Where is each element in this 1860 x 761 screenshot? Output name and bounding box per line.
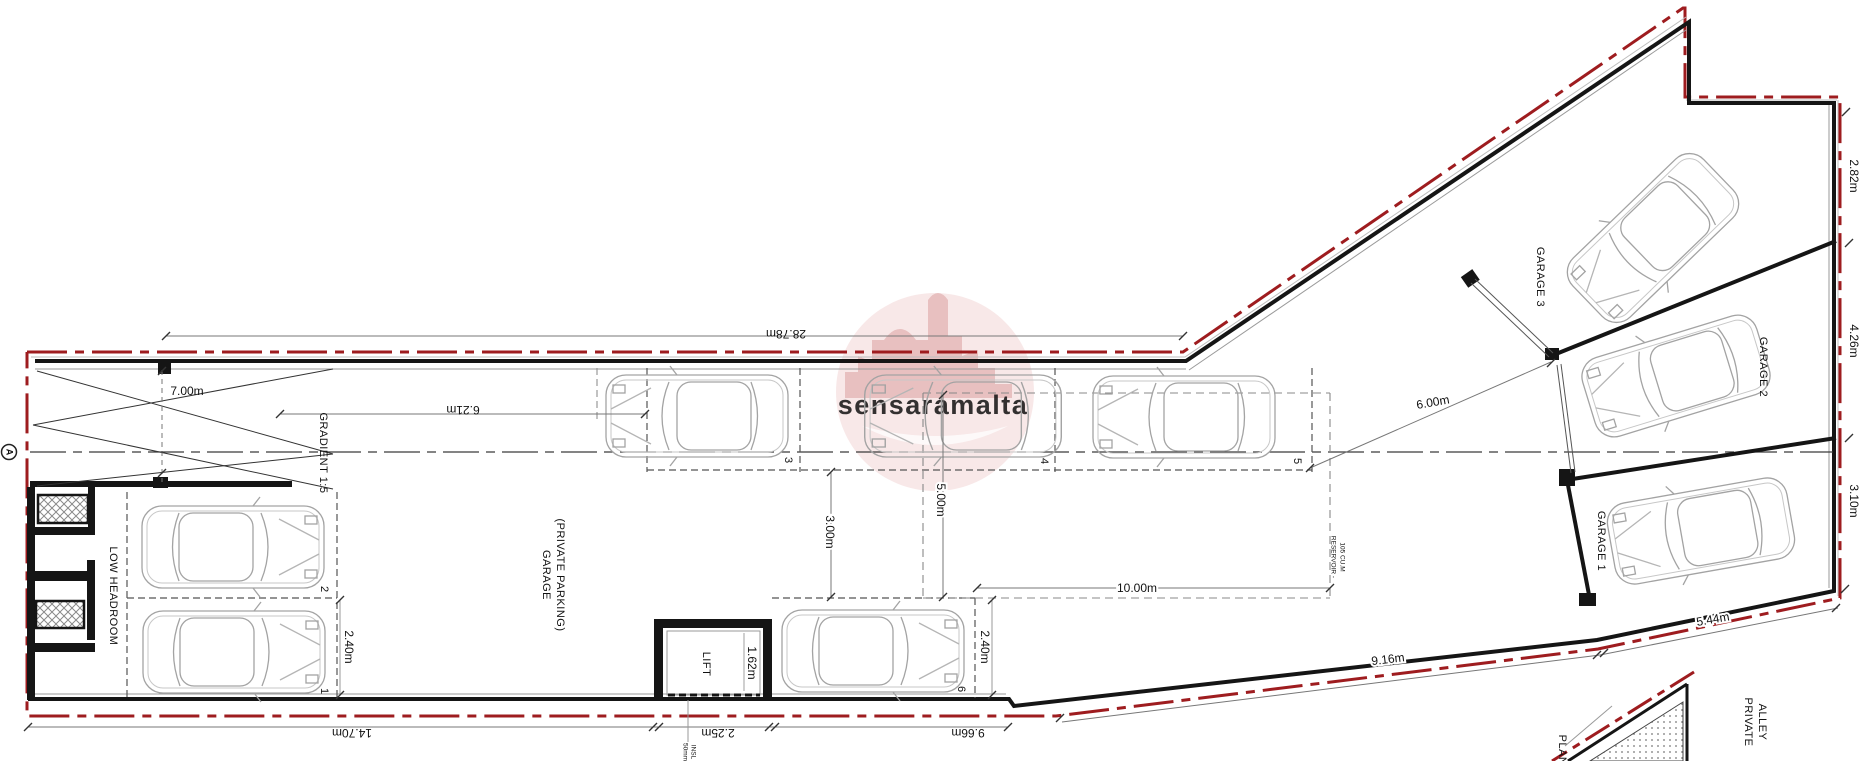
left-annex-walls [27,487,95,700]
dim-bay1-width: 2.40m [342,630,356,663]
hatched-pillar-icon [38,495,88,523]
reservoir-label-line2: 105 CU.M [1338,542,1345,571]
car-icon [143,602,325,702]
lift-label: LIFT [700,652,712,677]
garage-label-line2: (PRIVATE PARKING) [554,518,566,631]
dim-aisle-3m: 3.00m [823,515,837,548]
car-icon [1603,466,1800,596]
gradient-label: GRADIENT 1:5 [317,413,329,494]
watermark-text: sensaramalta [838,390,1029,420]
garage-label-line1: GARAGE [540,550,552,600]
private-alley-label-line1: PRIVATE [1742,698,1754,747]
insl-label-a: 50mm [681,743,688,761]
reservoir-label-line1: RESERVOIR - [1329,536,1336,578]
dim-bottom-lift: 2.25m [701,726,734,740]
garage-door-lines [1471,279,1575,473]
wall-end-blocks [1461,269,1596,606]
insl-label-b: INSL [689,745,696,760]
dim-right-bottom: 3.10m [1847,484,1860,517]
car-icon [1553,139,1753,337]
dim-bottom-right-inner: 9.16m [1370,650,1405,668]
dim-site-top: 28.78m [766,327,806,341]
garage1-label: GARAGE 1 [1595,511,1607,571]
hatched-pillar-icon [36,601,84,628]
car-icon [1574,302,1777,451]
plan-label: PLAN [1556,735,1568,761]
bay-number-2: 2 [318,586,330,592]
dim-bay6-width: 2.40m [978,630,992,663]
section-marker: A [2,445,17,460]
bay-number-1: 1 [318,688,330,694]
section-marker-label: A [5,449,15,456]
dim-bottom-right-outer: 5.44m [1695,609,1730,629]
dim-bottom-left: 14.70m [332,726,372,740]
dim-reservoir-depth: 5.00m [934,483,948,516]
car-icon [782,601,964,701]
watermark: sensaramalta [836,293,1034,491]
dim-bottom-mid: 9.66m [951,726,984,740]
dim-lift-width: 1.62m [745,646,759,679]
bay-number-5: 5 [1291,458,1303,464]
bay-number-4: 4 [1038,458,1050,464]
garage2-label: GARAGE 2 [1757,337,1769,397]
dim-right-top: 2.82m [1847,159,1860,192]
dim-ramp-width: 7.00m [170,384,203,398]
dim-ramp-length: 6.21m [446,403,479,417]
low-headroom-label: LOW HEADROOM [107,547,119,646]
floor-plan-canvas: sensaramalta [0,0,1860,761]
dim-reservoir-length: 10.00m [1117,581,1157,595]
private-alley-structure [1552,672,1694,761]
bay-number-3: 3 [782,457,794,463]
car-icon [142,497,324,597]
private-alley-label-line2: ALLEY [1756,704,1768,741]
car-icon [606,366,788,466]
plan-drawing: sensaramalta [0,0,1860,761]
dim-right-mid: 4.26m [1847,324,1860,357]
bay-number-6: 6 [955,686,967,692]
garage3-label: GARAGE 3 [1534,247,1546,307]
